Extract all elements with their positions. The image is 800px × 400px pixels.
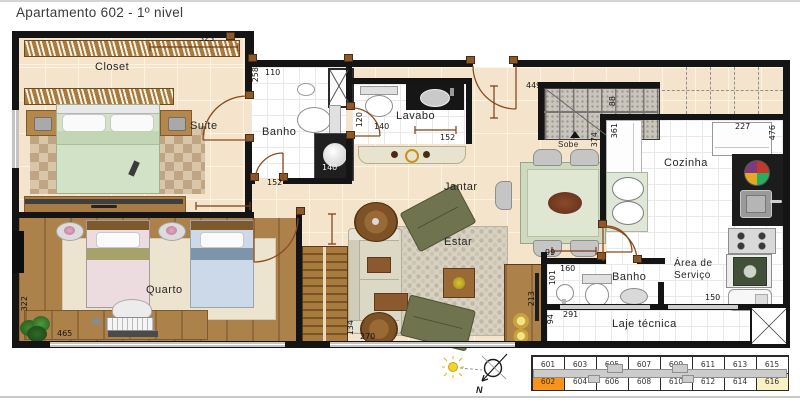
bed-blanket-band <box>87 248 149 260</box>
dimension-label: 120 <box>356 112 364 127</box>
keyplan-corridor-bump <box>588 375 600 383</box>
dimension-label: 160 <box>560 265 575 273</box>
keyplan-corridor <box>533 369 787 378</box>
quarto-bed-2 <box>190 220 254 308</box>
door-jamb <box>226 32 235 40</box>
door-jamb <box>344 54 353 62</box>
stair-landing-line <box>544 111 658 113</box>
flower-icon <box>64 226 75 235</box>
sideboard-estar <box>504 264 544 346</box>
fruit-plate-icon <box>744 160 770 186</box>
small-basin-icon <box>297 83 315 96</box>
room-label-suite: Suite <box>190 120 218 133</box>
dining-chair <box>570 240 599 257</box>
suite-bed <box>56 104 160 194</box>
dimension-label: 95 <box>245 184 253 194</box>
vent-slot <box>560 305 650 309</box>
decor-dot-icon <box>391 151 398 158</box>
bench-table <box>374 293 408 311</box>
wall <box>12 38 19 341</box>
washer-drum-icon <box>733 257 767 286</box>
cabinet-line <box>633 123 634 171</box>
wall <box>12 212 254 218</box>
compass: N <box>442 354 507 395</box>
north-label: N <box>476 385 483 395</box>
room-label-estar: Estar <box>444 236 472 249</box>
bed-blanket-band <box>191 248 253 260</box>
door-jamb <box>296 207 305 215</box>
dining-table <box>520 162 606 244</box>
dimension-label: 258 <box>252 67 260 82</box>
room-label-lavabo: Lavabo <box>396 110 435 123</box>
flower-icon <box>166 226 177 235</box>
page-bottom-border <box>0 396 800 398</box>
wall <box>541 252 547 344</box>
keyboard-icon <box>106 317 154 331</box>
keyplan-corridor-bump <box>682 375 694 383</box>
remote-icon <box>128 160 140 176</box>
overhead-cabinets <box>662 67 783 114</box>
flower-vase-icon <box>158 222 186 241</box>
suite-nightstand-left <box>26 110 58 136</box>
decor-dot-icon <box>423 151 430 158</box>
sofa-cushion-line <box>359 279 399 280</box>
sink-basin <box>746 195 766 213</box>
room-label-banho1: Banho <box>262 126 296 139</box>
washing-machine <box>726 254 772 288</box>
toilet-tank <box>360 86 398 95</box>
room-label-banho2: Banho <box>612 271 646 284</box>
wall <box>600 120 606 226</box>
door-jamb <box>250 173 259 181</box>
mouse-icon <box>92 318 101 325</box>
room-label-jantar: Jantar <box>444 181 478 194</box>
door-jamb <box>245 134 254 142</box>
flower-vase-icon <box>56 222 84 241</box>
bed-pillow <box>110 114 154 132</box>
kitchen-sink-oval <box>612 177 644 201</box>
dimension-label: 213 <box>528 291 536 306</box>
dimension-label: 134 <box>347 320 355 335</box>
armchair-cushion-line <box>414 316 463 329</box>
vase-stand <box>443 268 475 298</box>
bed-pillow <box>62 114 106 132</box>
counter-sink-icon <box>740 190 772 218</box>
wall <box>283 178 352 184</box>
dining-chair <box>570 149 599 166</box>
dimension-label: 476 <box>769 125 777 140</box>
coffee-table-round <box>354 202 398 242</box>
door-jamb <box>248 54 257 62</box>
dresser-handle <box>91 205 117 208</box>
oval-basin-icon <box>620 288 648 305</box>
room-label-sobe: Sobe <box>558 140 579 149</box>
dimension-label: 140 <box>322 164 337 172</box>
dimension-label: 110 <box>265 69 280 77</box>
toilet-icon <box>365 95 393 117</box>
sun-icon <box>442 356 464 378</box>
bowl-icon <box>513 313 529 329</box>
dimension-label: 227 <box>735 123 750 131</box>
plant-icon <box>18 314 56 344</box>
dimension-label: 270 <box>360 333 375 341</box>
page-top-border <box>0 0 800 2</box>
dimension-label: 140 <box>374 123 389 131</box>
compass-rose: N <box>476 354 507 395</box>
wall <box>12 31 254 38</box>
floor-plan: Apartamento 602 - 1º nivel <box>0 0 800 400</box>
armchair-cushion-line <box>417 206 458 228</box>
page-title: Apartamento 602 - 1º nivel <box>16 5 183 20</box>
vent-slot <box>668 305 738 309</box>
fridge-door-line <box>715 147 769 148</box>
door-jamb <box>466 56 475 64</box>
door-jamb <box>633 255 642 263</box>
dimension-label: 101 <box>347 146 355 161</box>
room-label-cozinha: Cozinha <box>664 157 708 170</box>
door-jamb <box>509 56 518 64</box>
door-jamb <box>245 91 254 99</box>
bed-headboard <box>87 221 149 230</box>
decor-ring-icon <box>405 149 419 163</box>
dimension-label: 101 <box>549 270 557 285</box>
wall <box>513 60 790 67</box>
shaft-box <box>750 306 788 346</box>
dimension-label: 361 <box>611 123 619 138</box>
bed-headboard <box>191 221 253 230</box>
suite-nightstand-right <box>160 110 192 136</box>
lamp-icon <box>34 117 52 131</box>
keyplan-corridor-bump <box>607 364 623 373</box>
vase-icon <box>453 277 465 289</box>
keyplan-corridor-bump <box>672 364 688 373</box>
dimension-label: 152 <box>267 179 282 187</box>
hall-sideboard <box>358 146 466 164</box>
dimension-label: 150 <box>705 294 720 302</box>
kitchen-dark-counter <box>732 154 784 226</box>
lavabo-counter <box>406 84 464 110</box>
wall <box>538 82 660 88</box>
door-jamb <box>346 102 355 110</box>
bed-pillow <box>96 232 140 248</box>
sofa-back <box>349 240 360 320</box>
cabinet-dash-line <box>662 90 783 91</box>
dimension-label: 322 <box>21 296 29 311</box>
dimension-label: 94 <box>547 314 555 324</box>
plant-leaf <box>27 326 47 342</box>
quarto-bed-1 <box>86 220 150 308</box>
dresser-top <box>25 199 183 204</box>
structural-column <box>12 231 24 273</box>
wall <box>352 78 472 84</box>
door-jamb <box>597 252 606 260</box>
wall <box>247 60 473 67</box>
platter-icon <box>547 191 583 215</box>
faucet-icon <box>450 88 454 96</box>
bed-blanket-fold <box>57 131 159 145</box>
dining-chair <box>533 149 562 166</box>
dimension-label: 291 <box>563 311 578 319</box>
door-jamb <box>346 131 355 139</box>
wall <box>538 82 544 140</box>
room-label-laje: Laje técnica <box>612 318 677 331</box>
room-label-area-servico: Área de Serviço <box>674 258 713 281</box>
faucet-icon <box>770 200 782 203</box>
keyplan: 6016036056076096116136156026046066086106… <box>531 355 789 391</box>
deck-center-line <box>323 247 326 341</box>
window <box>50 342 285 347</box>
sobe-arrow <box>570 131 580 138</box>
dimension-label: 465 <box>57 330 72 338</box>
deck-panel <box>302 246 348 344</box>
closet-rack-bottom <box>24 88 174 105</box>
sofa-cushion-icon <box>367 257 391 273</box>
dimension-label: 88 <box>609 96 617 106</box>
bed-pillow <box>200 232 244 248</box>
wall <box>600 114 786 120</box>
kitchen-sink-oval <box>612 201 644 225</box>
toilet-icon <box>297 107 331 133</box>
dimension-label: 99 <box>545 249 555 257</box>
lamp-icon <box>168 117 186 131</box>
room-label-quarto: Quarto <box>146 284 183 297</box>
window <box>12 110 19 168</box>
table-center-dot <box>372 218 379 225</box>
window <box>330 342 515 347</box>
door-jamb <box>598 220 607 228</box>
wall <box>296 212 302 344</box>
dimension-label: 374 <box>591 132 599 147</box>
bed-headboard <box>57 105 159 114</box>
stove <box>728 228 776 254</box>
room-label-closet: Closet <box>95 61 129 74</box>
dimension-label: 323 <box>199 35 214 43</box>
basin-icon <box>420 89 450 107</box>
monitor-icon <box>108 331 158 337</box>
wall <box>466 78 472 144</box>
dimension-label: 449 <box>526 82 541 90</box>
dimension-label: 152 <box>440 134 455 142</box>
toilet-tank <box>329 105 341 135</box>
dining-chair <box>495 181 512 210</box>
